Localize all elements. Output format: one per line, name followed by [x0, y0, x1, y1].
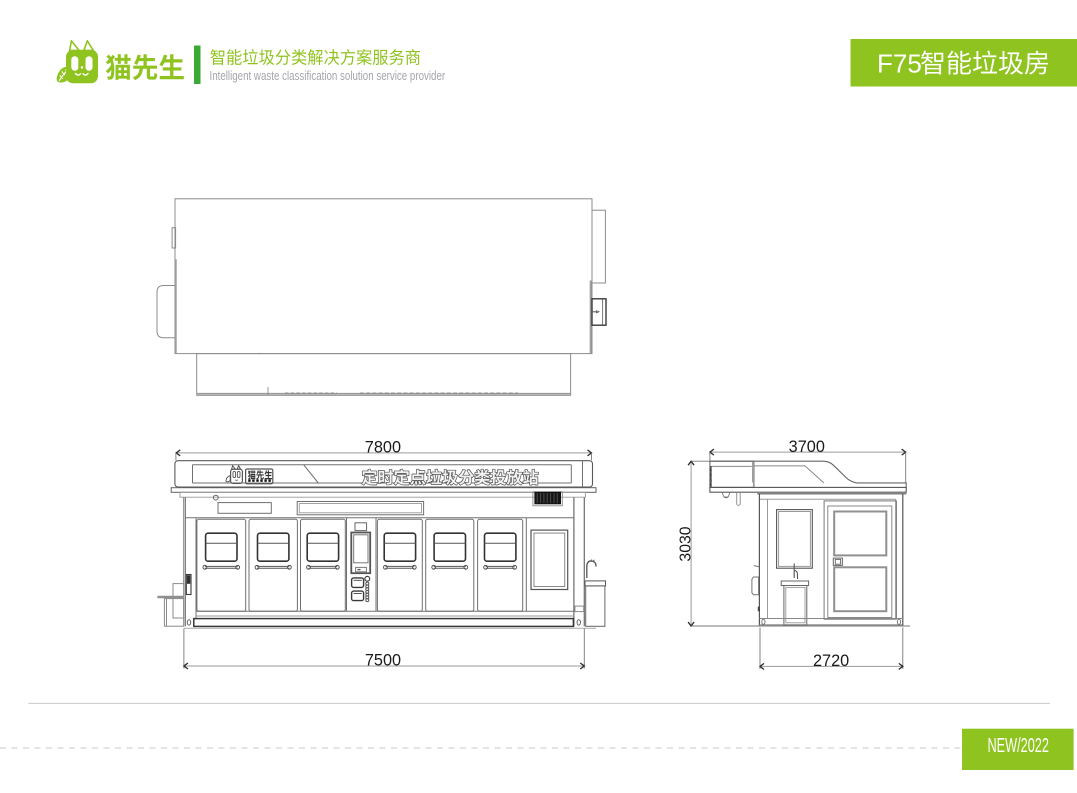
svg-text:3030: 3030 [678, 526, 695, 561]
svg-text:7800: 7800 [365, 438, 401, 456]
svg-text:2720: 2720 [813, 652, 849, 670]
svg-text:F75: F75 [877, 49, 922, 79]
svg-text:Intelligent waste classificati: Intelligent waste classification solutio… [210, 70, 446, 84]
svg-text:7500: 7500 [365, 652, 401, 670]
svg-text:NEW/2022: NEW/2022 [988, 734, 1049, 757]
svg-text:3700: 3700 [789, 438, 825, 456]
